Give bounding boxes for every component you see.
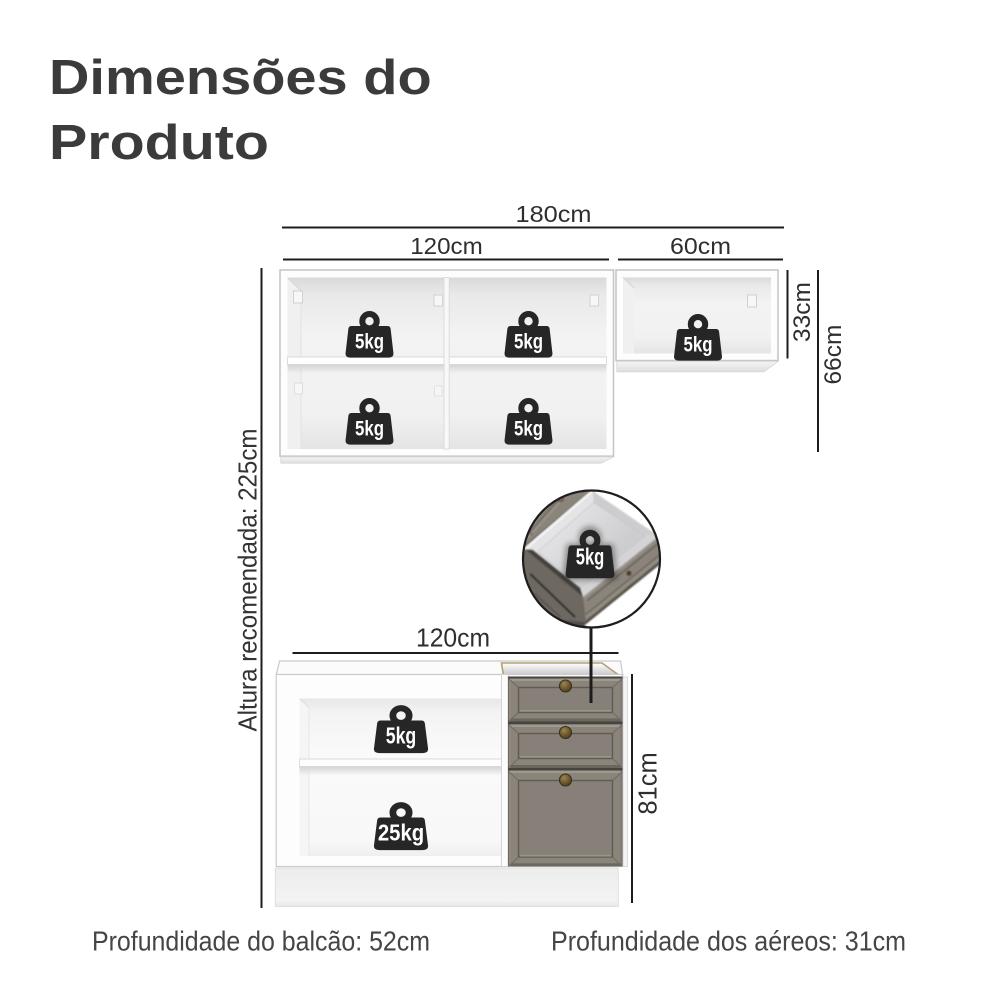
svg-text:5kg: 5kg [684, 334, 713, 357]
svg-text:120cm: 120cm [410, 233, 483, 259]
svg-text:Dimensões do: Dimensões do [49, 50, 432, 105]
svg-text:5kg: 5kg [355, 418, 384, 441]
svg-text:66cm: 66cm [820, 325, 847, 385]
svg-text:5kg: 5kg [514, 331, 543, 354]
svg-text:5kg: 5kg [576, 543, 605, 569]
svg-text:Profundidade dos aéreos: 31cm: Profundidade dos aéreos: 31cm [551, 926, 906, 957]
svg-text:5kg: 5kg [514, 418, 543, 441]
svg-text:Profundidade do balcão: 52cm: Profundidade do balcão: 52cm [92, 926, 430, 957]
svg-text:5kg: 5kg [386, 724, 417, 750]
svg-text:180cm: 180cm [516, 201, 592, 227]
svg-text:Altura recomendada: 225cm: Altura recomendada: 225cm [233, 429, 263, 732]
svg-text:5kg: 5kg [355, 331, 384, 354]
svg-text:60cm: 60cm [670, 233, 731, 259]
svg-text:25kg: 25kg [378, 821, 424, 847]
svg-text:33cm: 33cm [789, 282, 816, 342]
svg-text:120cm: 120cm [416, 623, 490, 653]
svg-text:Produto: Produto [49, 115, 269, 170]
svg-text:81cm: 81cm [635, 752, 663, 814]
